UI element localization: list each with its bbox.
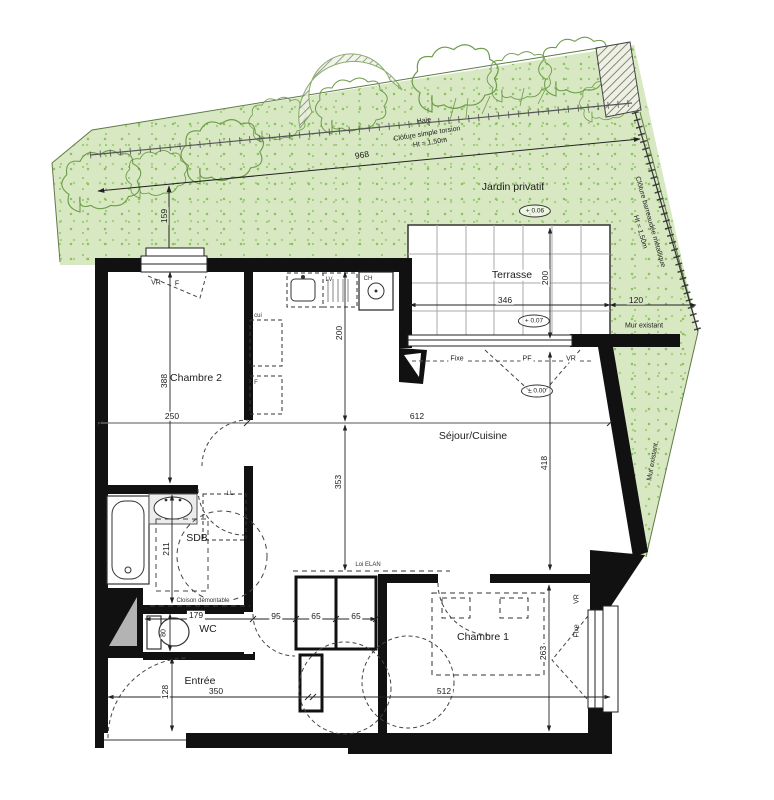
dim-bedroom1-width: 512 <box>435 687 453 696</box>
bedroom2-window-label: F <box>175 281 179 288</box>
living-kitchen-label: Séjour/Cuisine <box>439 431 507 442</box>
dim-terrace-depth: 200 <box>541 269 550 287</box>
dim-living-width: 612 <box>408 412 426 421</box>
floor-plan: Jardin privatif + 0.06 Haie Clôture simp… <box>0 0 774 800</box>
bedroom2-window <box>141 248 207 298</box>
bedroom1-label: Chambre 1 <box>457 632 509 643</box>
dim-bedroom1-depth: 263 <box>539 644 548 662</box>
terrace-tiles <box>408 225 610 340</box>
floorplan-linework <box>0 0 774 800</box>
terrace-level-badge: + 0.07 <box>518 315 550 328</box>
closets <box>293 571 450 711</box>
garden-label: Jardin privatif <box>482 182 544 193</box>
bay-fixed-label: Fixe <box>448 356 465 363</box>
bedroom2-shutter-label: VR <box>151 280 161 287</box>
kitchen-counter-label: cui <box>254 313 262 319</box>
dim-garden-depth: 159 <box>160 207 169 225</box>
dim-bedroom2-depth: 388 <box>160 372 169 390</box>
dim-entrance-depth: 128 <box>161 683 170 701</box>
bay-window <box>408 335 594 393</box>
dim-living-right-depth: 418 <box>540 454 549 472</box>
dim-terrace-width: 346 <box>496 296 514 305</box>
bay-shutter-label: VR <box>564 356 578 363</box>
dim-hall-width: 95 <box>269 612 282 621</box>
removable-partition-label: Cloison démontable <box>174 598 231 604</box>
bathroom-label: SDB <box>186 533 208 544</box>
fridge-label: F <box>254 380 258 386</box>
bedroom1-fixed-label: Fixe <box>574 624 581 637</box>
dim-closet-b: 65 <box>349 612 362 621</box>
dim-closet-a: 65 <box>309 612 322 621</box>
dim-living-left-depth: 353 <box>334 473 343 491</box>
toilet-label: WC <box>199 624 217 635</box>
terrace-label: Terrasse <box>490 270 534 281</box>
bathroom-fixtures <box>107 494 267 601</box>
dim-kitchen-depth: 200 <box>335 324 344 342</box>
kitchen-fixtures <box>250 272 393 414</box>
dishwasher-label: LV <box>326 277 333 283</box>
entrance-label: Entrée <box>185 676 216 687</box>
dim-bathroom-width: 179 <box>187 611 205 620</box>
bedroom2-label: Chambre 2 <box>170 373 222 384</box>
ground-level-badge: ± 0.00 <box>521 385 553 398</box>
garden-level-badge: + 0.06 <box>519 205 551 218</box>
dim-entrance-width: 350 <box>207 687 225 696</box>
washing-machine-label: LL <box>227 491 234 497</box>
dim-wc-width: 80 <box>161 627 168 639</box>
dim-side-strip: 120 <box>627 296 645 305</box>
bedroom1-shutter-label: VR <box>574 594 581 604</box>
bedroom1-window <box>552 606 618 712</box>
existing-wall-top-label: Mur existant <box>625 323 663 330</box>
dim-bedroom2-width: 250 <box>163 412 181 421</box>
dim-bathroom-depth: 211 <box>162 540 171 558</box>
water-heater-label: CH <box>364 276 373 282</box>
elan-note-label: Loi ELAN <box>353 562 382 568</box>
bay-door-label: PF <box>521 356 534 363</box>
toilet-fixture <box>147 616 189 649</box>
